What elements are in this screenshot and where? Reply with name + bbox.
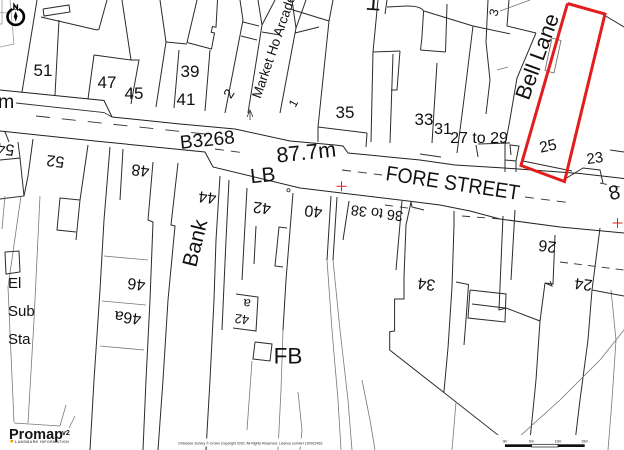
svg-text:m: m [0,91,14,113]
svg-text:34: 34 [416,274,436,293]
svg-text:El: El [8,275,21,292]
svg-text:48: 48 [130,160,150,179]
svg-text:Sta: Sta [8,331,31,348]
svg-text:46a: 46a [114,307,143,327]
svg-text:51: 51 [34,61,53,80]
svg-text:23: 23 [585,149,604,168]
svg-text:5m: 5m [529,439,534,443]
svg-text:47: 47 [98,73,117,92]
svg-text:FB: FB [274,344,303,369]
svg-text:v2: v2 [62,430,70,437]
svg-text:40: 40 [303,201,323,220]
svg-text:44: 44 [197,187,217,206]
svg-text:10m: 10m [555,439,562,443]
svg-text:54: 54 [0,139,15,158]
svg-text:27 to 29: 27 to 29 [450,130,508,147]
svg-text:Ordnance Survey © Crown Copyri: Ordnance Survey © Crown Copyright 2020. … [178,442,322,446]
svg-text:15m: 15m [581,439,588,443]
svg-text:42: 42 [234,311,250,328]
svg-text:35: 35 [336,103,355,122]
svg-text:39: 39 [181,62,200,81]
svg-text:41: 41 [177,90,196,109]
svg-text:24: 24 [573,274,593,293]
svg-text:25: 25 [538,136,558,156]
svg-text:0m: 0m [503,439,508,443]
svg-text:Sub: Sub [8,303,35,320]
svg-text:T: T [366,0,381,15]
svg-text:LB: LB [249,163,276,188]
svg-text:LANDMARK INFORMATION: LANDMARK INFORMATION [15,440,69,444]
svg-text:52: 52 [45,151,65,170]
svg-text:42: 42 [252,198,272,217]
svg-text:45: 45 [125,84,144,103]
svg-text:26: 26 [537,236,557,255]
svg-text:46: 46 [126,274,146,293]
svg-text:33: 33 [415,110,434,129]
